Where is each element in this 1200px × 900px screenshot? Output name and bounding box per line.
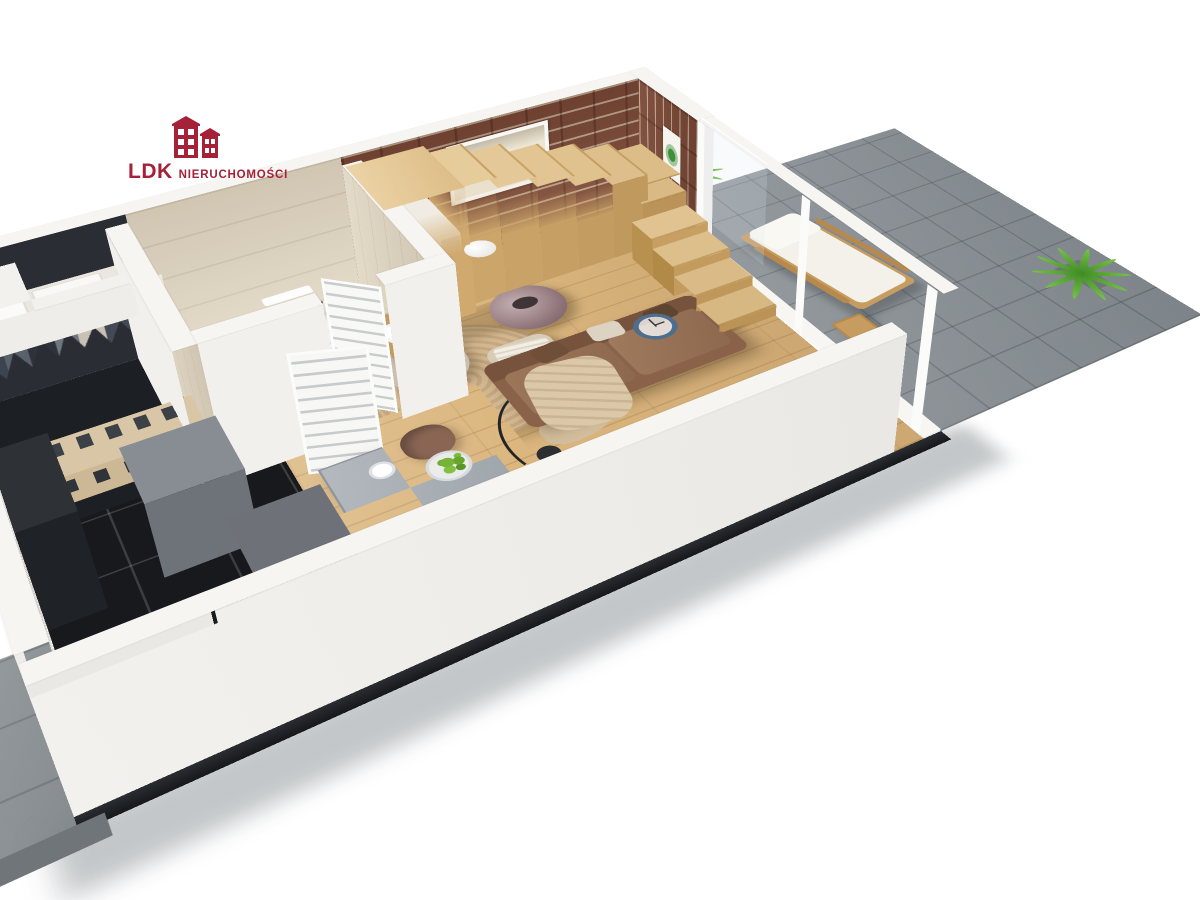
stair-riser <box>537 176 579 281</box>
logo-subtitle-text: NIERUCHOMOŚCI <box>179 169 288 181</box>
buildings-icon <box>170 112 228 158</box>
logo-brand-text: LDK <box>128 160 173 184</box>
brand-logo: LDK NIERUCHOMOŚCI <box>128 112 348 184</box>
stair-riser <box>498 177 543 294</box>
stair-riser <box>576 175 615 269</box>
floor-plan-render: LDK NIERUCHOMOŚCI <box>0 0 1200 900</box>
apartment-plan <box>0 103 1200 900</box>
potted-plant-large <box>1000 233 1163 318</box>
